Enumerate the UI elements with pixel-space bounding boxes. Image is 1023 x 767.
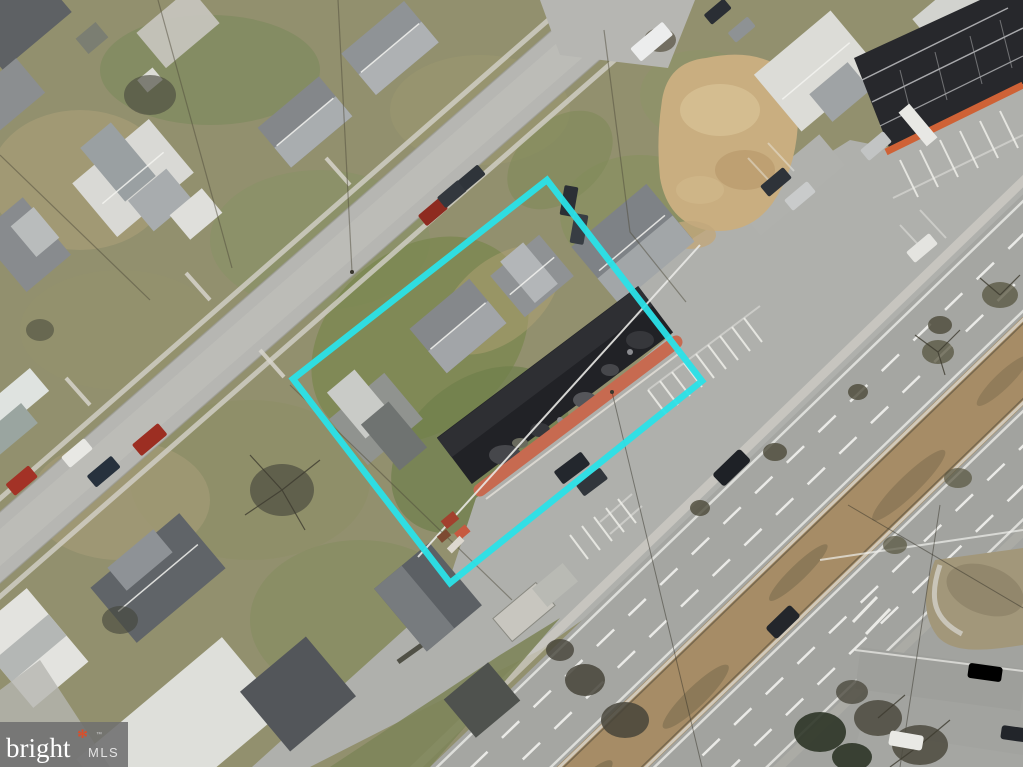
evergreen-tree [794,712,846,752]
brightmls-logo-star-icon: * [77,724,88,749]
watermark: bright * ™ MLS [0,722,128,767]
aerial-photo-canvas: bright * ™ MLS [0,0,1023,767]
trademark-symbol: ™ [96,731,102,738]
brightmls-logo-suffix: MLS [88,745,119,760]
brightmls-logo-brand: bright [6,733,71,763]
aerial-photo: bright * ™ MLS [0,0,1023,767]
